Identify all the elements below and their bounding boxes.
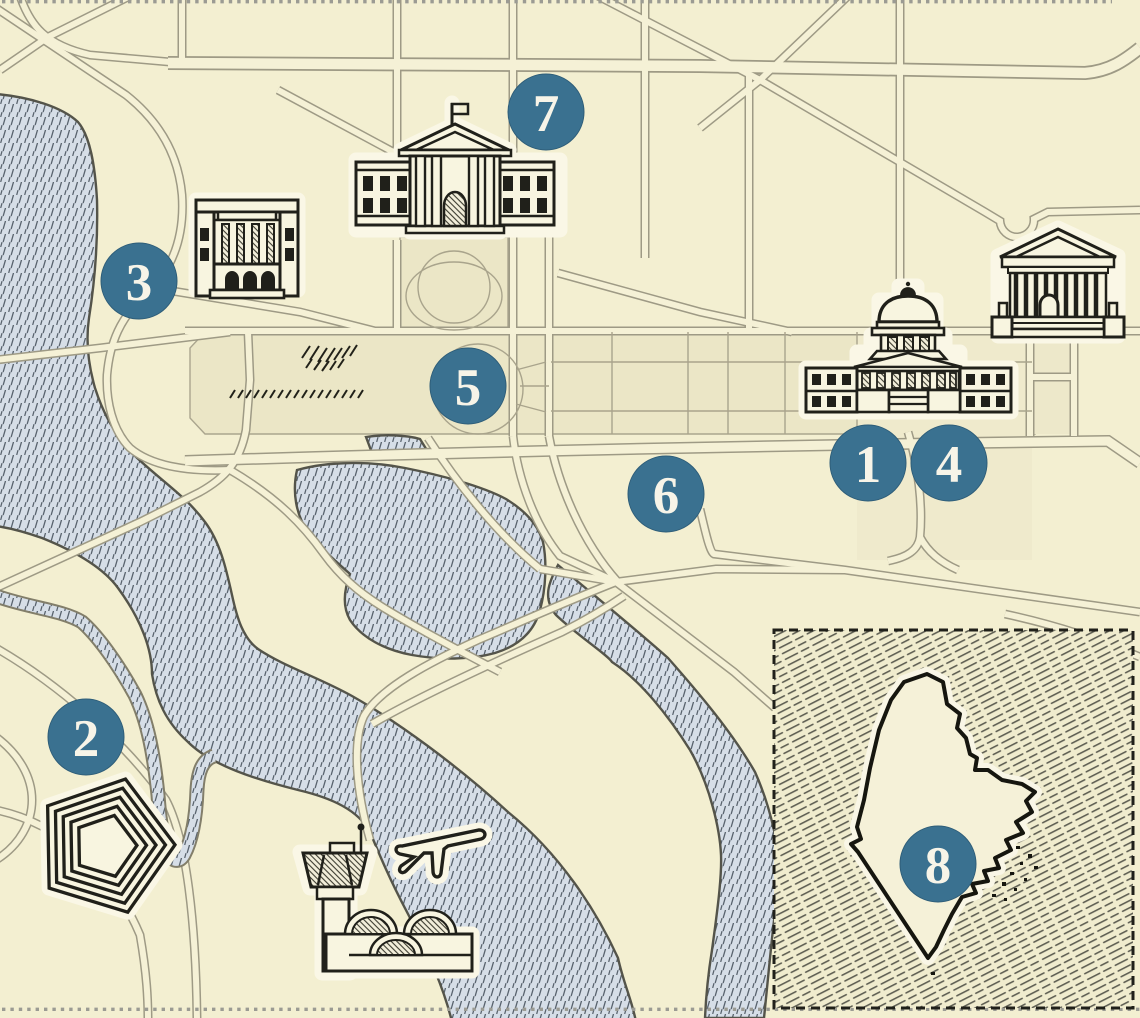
svg-text:3: 3: [126, 254, 153, 312]
svg-text:5: 5: [455, 359, 482, 417]
svg-text:8: 8: [925, 837, 952, 895]
svg-text:1: 1: [855, 436, 882, 494]
svg-text:6: 6: [653, 467, 680, 525]
svg-text:7: 7: [533, 85, 560, 143]
svg-text:2: 2: [73, 710, 100, 768]
svg-text:4: 4: [936, 436, 963, 494]
